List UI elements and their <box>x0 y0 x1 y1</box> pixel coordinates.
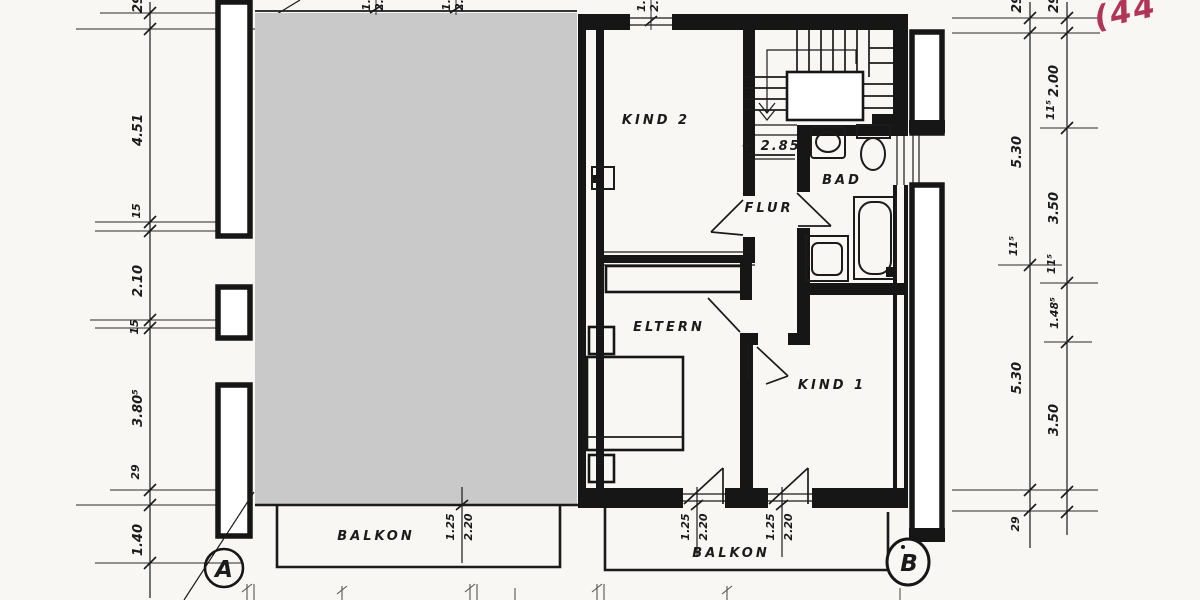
balcony-door-dim: 1.25 <box>679 513 692 540</box>
section-marker-b: B <box>887 539 929 585</box>
dim-label: 11⁵ <box>1044 100 1057 120</box>
door-swing-kind2 <box>711 200 743 235</box>
door-swing-balcony-kind1 <box>769 468 808 504</box>
balcony-door-dim: 2.20 <box>782 513 795 540</box>
balcony-door-dim: 1.25 <box>444 513 457 540</box>
balkon-label-left: BALKON <box>337 529 414 544</box>
dim-label: 2.00 <box>1047 65 1062 97</box>
balkon-label-right: BALKON <box>692 546 769 561</box>
dimension-chain-right-outer: 29 5.30 11⁵ 5.30 29 <box>1007 0 1036 548</box>
dim-label: 3.50 <box>1047 404 1062 436</box>
window-dim: 2. <box>648 0 661 12</box>
left-facade-piers <box>218 2 250 536</box>
room-label-kind2: KIND 2 <box>622 113 690 128</box>
bathtub-icon <box>854 197 896 279</box>
dim-label: 29 <box>129 464 142 480</box>
dim-label: 15 <box>128 319 141 335</box>
dimension-extension-lines-right <box>952 18 1100 511</box>
dim-label: 5.30 <box>1010 362 1025 394</box>
dim-label: 3.80⁵ <box>131 389 146 427</box>
bottom-tick-marks <box>242 584 900 600</box>
stair-void <box>787 72 863 120</box>
floor-plan-drawing: 29 4.51 15 2.10 15 3.80⁵ 29 1.40 1. 2. 1… <box>0 0 1200 600</box>
section-marker-b-label: B <box>900 551 918 577</box>
dim-label: 4.51 <box>131 114 146 147</box>
dim-label: 5.30 <box>1010 136 1025 168</box>
door-swing-kind1 <box>757 347 788 384</box>
dim-label: 29 <box>131 0 146 13</box>
door-swing-bad <box>797 193 831 226</box>
section-marker-a: A <box>205 549 243 587</box>
redaction-gray-box <box>255 13 577 505</box>
section-line-top <box>277 0 300 14</box>
balcony-door-dim: 2.20 <box>462 513 475 540</box>
window-dim: 2. <box>373 0 386 11</box>
shower-tray-icon <box>806 236 848 281</box>
dim-label: 2.10 <box>131 265 146 297</box>
room-label-kind1: KIND 1 <box>798 378 866 393</box>
window-dim: 1. <box>360 0 373 11</box>
window-dim: 2. <box>453 0 466 11</box>
dim-label: 29 <box>1047 0 1062 13</box>
stair-level-label: + 2.85 <box>741 139 801 154</box>
right-facade-piers <box>909 32 945 542</box>
wardrobe-icon <box>606 266 742 292</box>
dim-label: 29 <box>1010 0 1025 13</box>
dim-label: 15 <box>130 203 143 219</box>
dim-label: 11⁵ <box>1007 236 1020 256</box>
window-dim: 1. <box>440 0 453 11</box>
dim-label: 29 <box>1009 516 1022 532</box>
room-label-bad: BAD <box>822 173 862 188</box>
room-label-eltern: ELTERN <box>633 320 705 335</box>
eltern-furniture <box>587 266 742 482</box>
dim-label: 3.50 <box>1047 192 1062 224</box>
section-marker-a-label: A <box>213 557 233 583</box>
red-annotation: (44 <box>1091 0 1160 36</box>
room-label-flur: FLUR <box>744 201 793 216</box>
bath-fixtures <box>806 125 896 281</box>
window-dim: 1. <box>635 0 648 12</box>
balcony-door-dim: 1.25 <box>764 513 777 540</box>
dim-label: 1.48⁵ <box>1048 297 1061 329</box>
dimension-chain-right-inner: 29 2.00 11⁵ 3.50 11⁵ 1.48⁵ 3.50 <box>1044 0 1073 535</box>
balcony-door-dim: 2.20 <box>697 513 710 540</box>
dim-label: 1.40 <box>131 524 146 556</box>
door-swing-balcony-eltern <box>684 468 723 504</box>
dim-label: 11⁵ <box>1045 254 1058 274</box>
